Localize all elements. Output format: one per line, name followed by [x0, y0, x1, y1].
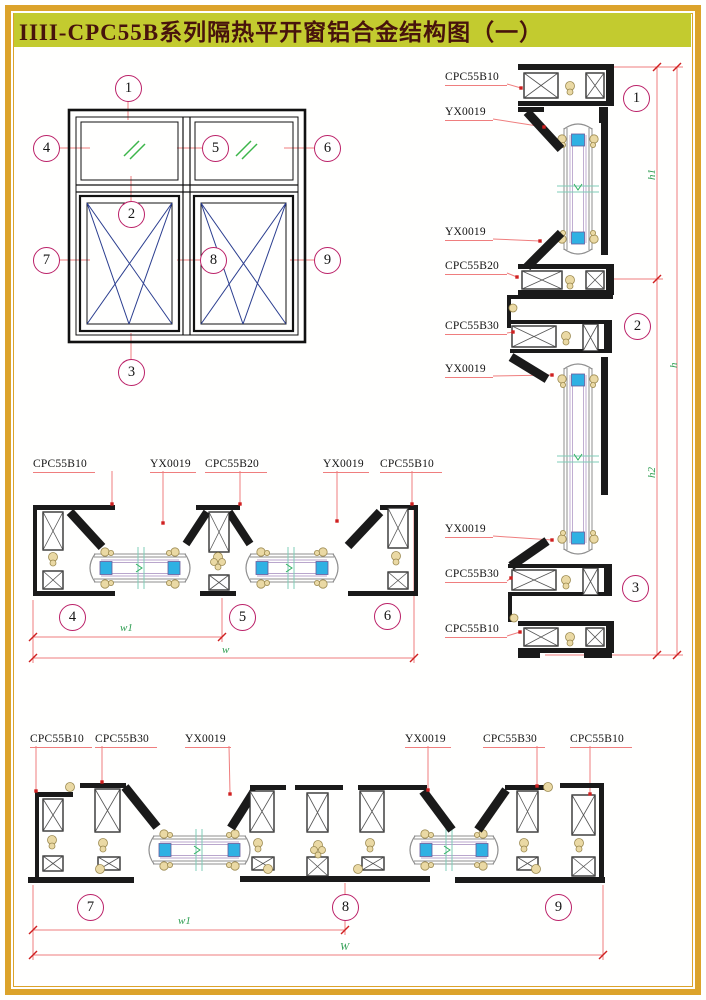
part-label-yx0019: YX0019	[445, 105, 493, 121]
section-callout-8: 8	[332, 894, 359, 921]
section-callout-2: 2	[624, 313, 651, 340]
dim-h2: h2	[646, 467, 658, 478]
callout-2: 2	[118, 201, 145, 228]
part-label-cpc55b10: CPC55B10	[570, 732, 632, 748]
part-label-yx0019: YX0019	[445, 225, 493, 241]
dim-w: w	[222, 644, 229, 656]
section-callout-4: 4	[59, 604, 86, 631]
section-callout-7: 7	[77, 894, 104, 921]
callout-5: 5	[202, 135, 229, 162]
drawing-sheet: IIII-CPC55B系列隔热平开窗铝合金结构图（一） 1 2 3 4 5 6 …	[0, 0, 706, 1000]
part-label-yx0019: YX0019	[405, 732, 451, 748]
part-label-yx0019: YX0019	[150, 457, 196, 473]
callout-1: 1	[115, 75, 142, 102]
section-callout-1: 1	[623, 85, 650, 112]
part-label-cpc55b30: CPC55B30	[445, 319, 507, 335]
part-label-cpc55b20: CPC55B20	[445, 259, 507, 275]
part-label-cpc55b10: CPC55B10	[445, 622, 507, 638]
callout-7: 7	[33, 247, 60, 274]
part-label-cpc55b30: CPC55B30	[483, 732, 545, 748]
dim-w1: w1	[178, 915, 191, 927]
section-callout-3: 3	[622, 575, 649, 602]
callout-4: 4	[33, 135, 60, 162]
callout-8: 8	[200, 247, 227, 274]
section-callout-5: 5	[229, 604, 256, 631]
part-label-cpc55b10: CPC55B10	[33, 457, 95, 473]
technical-drawing	[0, 0, 706, 1000]
part-label-yx0019: YX0019	[185, 732, 231, 748]
callout-3: 3	[118, 359, 145, 386]
part-label-yx0019: YX0019	[445, 522, 493, 538]
section-callout-6: 6	[374, 603, 401, 630]
part-label-yx0019: YX0019	[323, 457, 369, 473]
dim-h: h	[668, 363, 680, 369]
part-label-yx0019: YX0019	[445, 362, 493, 378]
dim-w1: w1	[120, 622, 133, 634]
callout-6: 6	[314, 135, 341, 162]
dim-W: W	[340, 941, 349, 953]
part-label-cpc55b30: CPC55B30	[445, 567, 507, 583]
part-label-cpc55b20: CPC55B20	[205, 457, 267, 473]
part-label-cpc55b30: CPC55B30	[95, 732, 157, 748]
part-label-cpc55b10: CPC55B10	[445, 70, 507, 86]
part-label-cpc55b10: CPC55B10	[380, 457, 442, 473]
callout-9: 9	[314, 247, 341, 274]
dim-h1: h1	[646, 169, 658, 180]
part-label-cpc55b10: CPC55B10	[30, 732, 92, 748]
section-callout-9: 9	[545, 894, 572, 921]
